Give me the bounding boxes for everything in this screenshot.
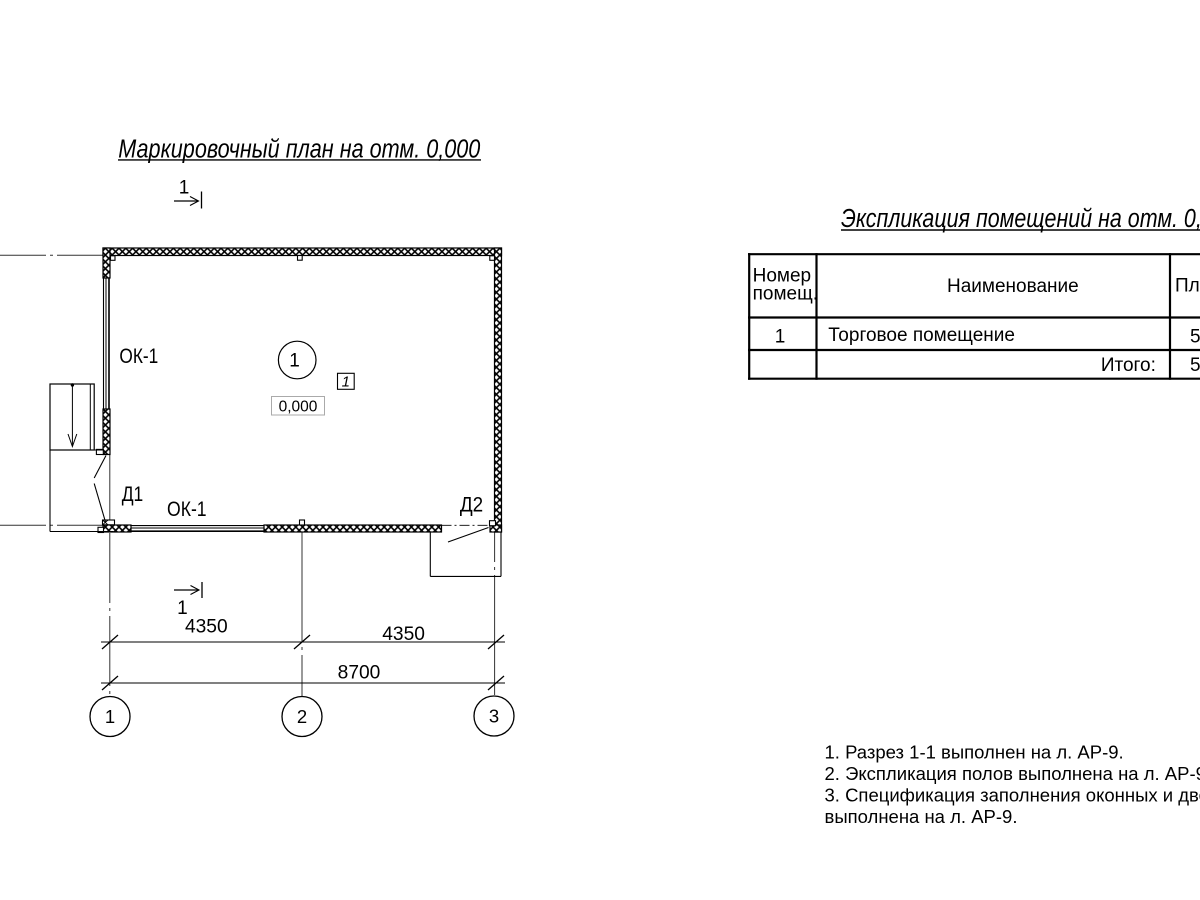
svg-text:1: 1 — [105, 706, 115, 727]
svg-text:ОК-1: ОК-1 — [167, 498, 207, 521]
svg-text:Итого:: Итого: — [1101, 355, 1156, 376]
svg-text:0,000: 0,000 — [279, 399, 318, 416]
svg-text:8700: 8700 — [338, 663, 381, 684]
svg-text:54,8: 54,8 — [1190, 327, 1200, 348]
svg-text:выполнена на л. АР-9.: выполнена на л. АР-9. — [825, 806, 1018, 827]
svg-text:Площадь,: Площадь, — [1175, 276, 1200, 297]
svg-text:помещ.: помещ. — [753, 284, 818, 305]
svg-text:1. Разрез 1-1 выполнен на л. А: 1. Разрез 1-1 выполнен на л. АР-9. — [825, 742, 1124, 763]
svg-text:3. Спецификация заполнения око: 3. Спецификация заполнения оконных и две… — [825, 785, 1200, 806]
svg-text:Наименование: Наименование — [947, 276, 1079, 297]
svg-text:Экспликация помещений на отм.: Экспликация помещений на отм. 0,000 — [841, 205, 1200, 233]
svg-text:4350: 4350 — [382, 624, 425, 645]
svg-text:1: 1 — [775, 327, 786, 348]
svg-text:Торговое помещение: Торговое помещение — [828, 325, 1015, 346]
svg-text:2. Экспликация полов выполнена: 2. Экспликация полов выполнена на л. АР-… — [825, 763, 1200, 784]
svg-text:Д2: Д2 — [460, 494, 483, 517]
svg-text:ОК-1: ОК-1 — [119, 345, 158, 368]
svg-text:1: 1 — [179, 178, 190, 199]
svg-text:54,8: 54,8 — [1190, 355, 1200, 376]
svg-text:1: 1 — [289, 351, 300, 372]
svg-text:Д1: Д1 — [122, 483, 144, 506]
svg-text:2: 2 — [297, 706, 307, 727]
svg-text:4350: 4350 — [185, 616, 228, 637]
svg-text:3: 3 — [489, 706, 499, 727]
svg-text:1: 1 — [342, 373, 350, 390]
